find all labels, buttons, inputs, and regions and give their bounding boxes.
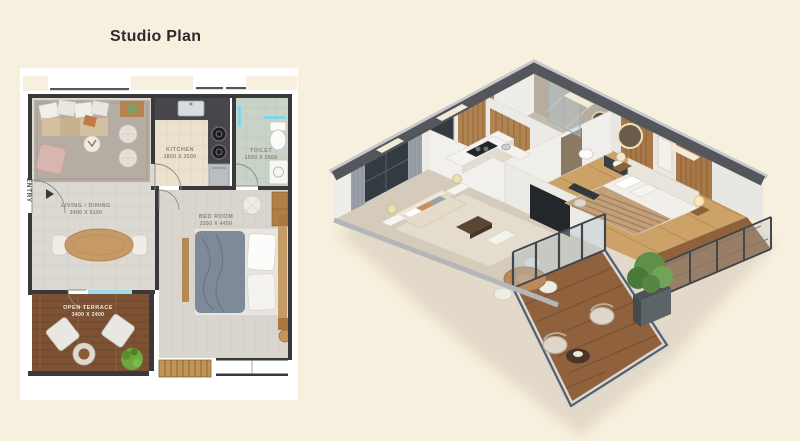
terrace-dims: 3400 X 2400: [72, 312, 105, 318]
armchair-2d: [36, 144, 67, 175]
terrace-label: OPEN TERRACE: [63, 305, 113, 311]
bedroom-window-2d: [216, 358, 288, 376]
page: Studio Plan: [0, 0, 800, 441]
shoe-rack-2d: [159, 360, 211, 377]
table-lamp-2: [453, 175, 462, 184]
bedroom-round-mirror: [618, 124, 642, 148]
rope-chair-2: [590, 308, 614, 325]
toilet-label: TOILET: [250, 148, 273, 154]
toilet-3d: [579, 149, 593, 159]
table-lamp-1: [388, 205, 397, 214]
bedroom-dims: 3350 X 4450: [200, 221, 233, 227]
entry-label: ENTRY: [25, 178, 32, 203]
living-label: LIVING / DINING: [61, 203, 111, 209]
isometric-3d-view: [318, 48, 800, 441]
wall-artwork: [658, 136, 672, 173]
living-furniture-2d: [34, 100, 150, 182]
living-dims: 3400 X 5150: [70, 210, 103, 216]
toilet-dims: 1500 X 2500: [245, 155, 278, 161]
floor-plan-2d: LIVING / DINING 3400 X 5150 KITCHEN 1850…: [20, 68, 298, 400]
page-title: Studio Plan: [110, 28, 201, 46]
kitchen-dims: 1850 X 2500: [164, 154, 197, 160]
bedroom-label: BED ROOM: [199, 214, 233, 220]
rope-chair-1: [543, 337, 567, 354]
sink-3d: [502, 144, 511, 150]
kitchen-label: KITCHEN: [166, 147, 194, 153]
stool: [574, 199, 586, 207]
